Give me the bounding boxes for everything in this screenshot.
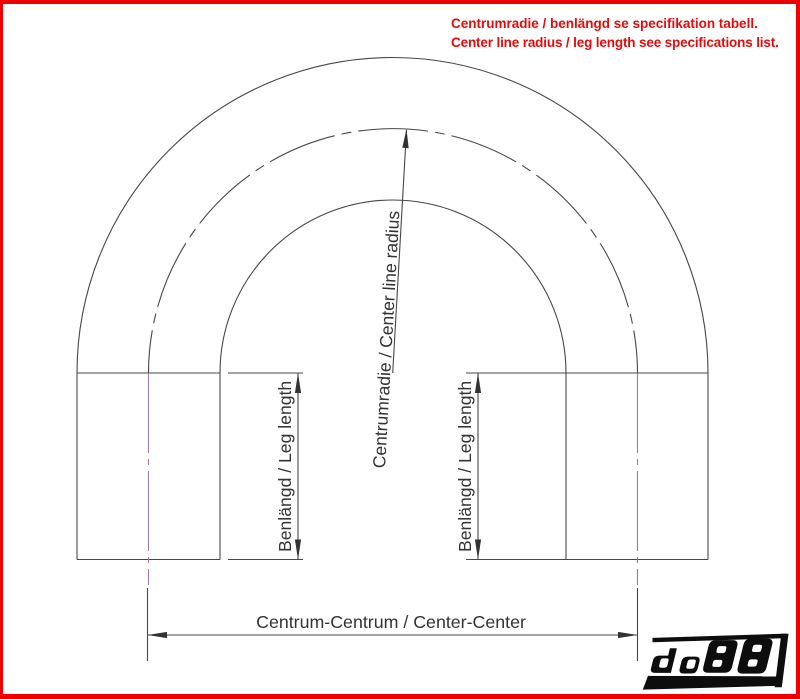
svg-text:Benlängd / Leg length: Benlängd / Leg length <box>275 381 295 552</box>
svg-text:Center line radius / leg lengt: Center line radius / leg length see spec… <box>451 35 779 50</box>
svg-text:Centrum-Centrum / Center-Cente: Centrum-Centrum / Center-Center <box>256 612 526 632</box>
svg-text:Benlängd / Leg length: Benlängd / Leg length <box>455 381 475 552</box>
svg-text:Centrumradie / Center line rad: Centrumradie / Center line radius <box>369 210 403 469</box>
svg-text:Centrumradie / benlängd se spe: Centrumradie / benlängd se specifikation… <box>451 16 758 31</box>
